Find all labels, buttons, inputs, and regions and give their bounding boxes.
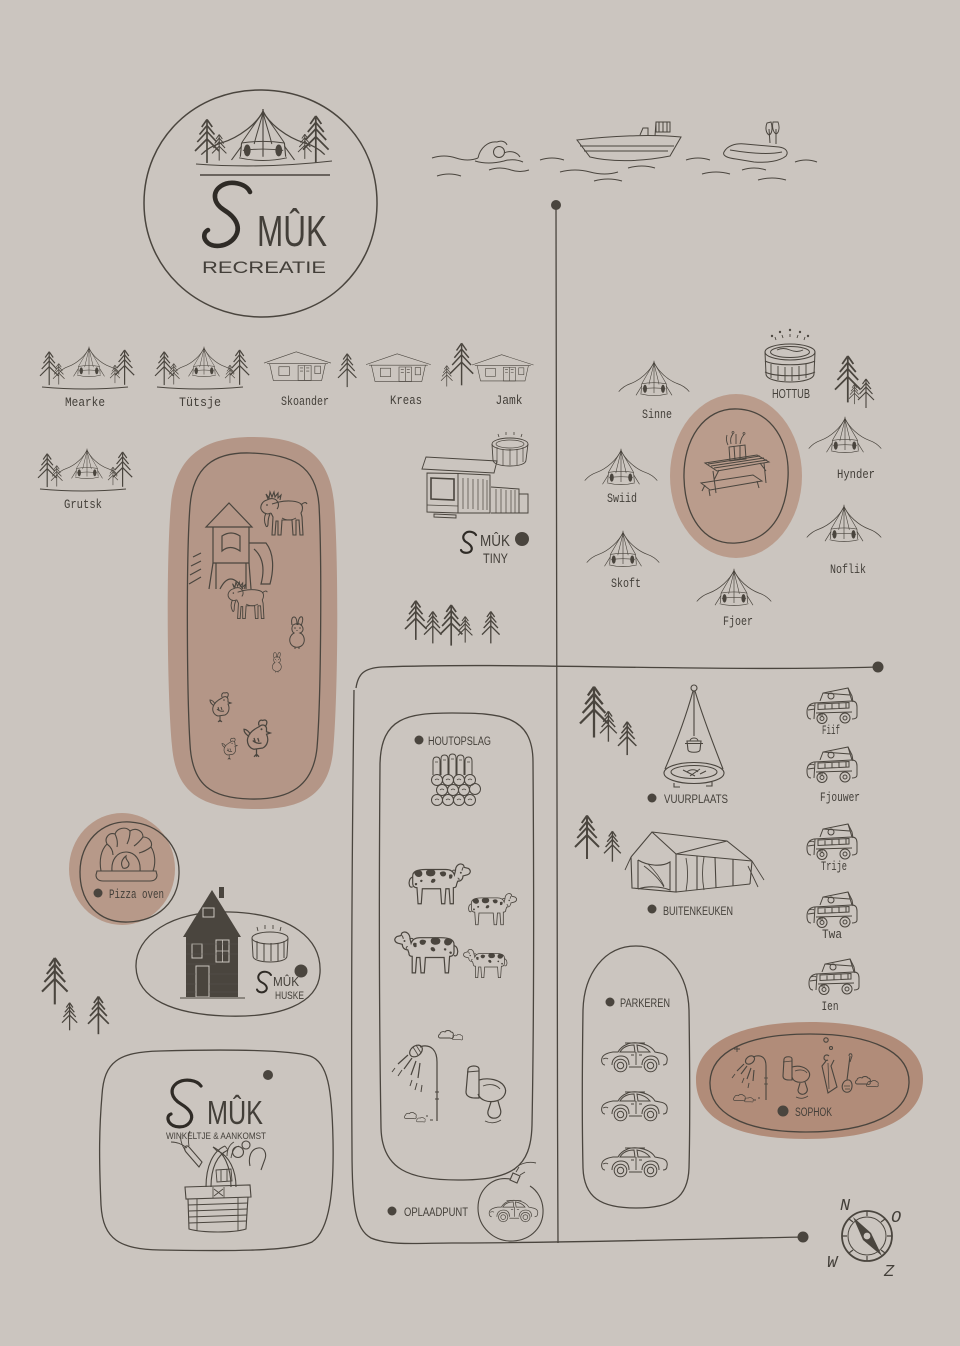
svg-text:O: O <box>891 1209 901 1228</box>
svg-text:Skoander: Skoander <box>281 394 329 409</box>
svg-text:MÛK: MÛK <box>257 206 327 256</box>
svg-text:N: N <box>840 1197 851 1216</box>
svg-text:HUSKE: HUSKE <box>275 990 304 1002</box>
svg-text:Jamk: Jamk <box>496 393 523 408</box>
svg-text:Tütsje: Tütsje <box>179 395 221 410</box>
svg-text:Skoft: Skoft <box>611 576 641 591</box>
svg-text:HOTTUB: HOTTUB <box>772 387 810 401</box>
svg-text:Fiif: Fiif <box>822 724 840 738</box>
svg-text:VUURPLAATS: VUURPLAATS <box>664 792 728 806</box>
svg-text:Fjoer: Fjoer <box>723 614 753 629</box>
svg-text:BUITENKEUKEN: BUITENKEUKEN <box>663 904 733 918</box>
svg-text:W: W <box>827 1254 839 1273</box>
svg-text:MÛK: MÛK <box>480 533 511 550</box>
svg-text:Kreas: Kreas <box>390 393 422 408</box>
svg-text:RECREATIE: RECREATIE <box>202 258 326 277</box>
svg-text:MÛK: MÛK <box>207 1094 263 1131</box>
svg-text:Pizza oven: Pizza oven <box>109 887 164 902</box>
svg-text:Ien: Ien <box>822 1000 839 1014</box>
svg-text:Fjouwer: Fjouwer <box>820 791 860 805</box>
svg-text:SOPHOK: SOPHOK <box>795 1105 832 1119</box>
svg-text:MÛK: MÛK <box>273 974 300 989</box>
svg-text:HOUTOPSLAG: HOUTOPSLAG <box>428 734 491 748</box>
svg-text:Trije: Trije <box>821 860 847 874</box>
svg-text:Hynder: Hynder <box>837 467 875 482</box>
svg-text:Noflik: Noflik <box>830 562 866 577</box>
svg-text:TINY: TINY <box>483 551 508 566</box>
svg-text:Swiid: Swiid <box>607 491 637 506</box>
svg-text:Sinne: Sinne <box>642 407 672 422</box>
svg-text:Twa: Twa <box>822 928 842 942</box>
svg-text:Z: Z <box>883 1263 895 1282</box>
svg-text:OPLAADPUNT: OPLAADPUNT <box>404 1205 468 1219</box>
svg-text:Grutsk: Grutsk <box>64 497 102 512</box>
svg-text:PARKEREN: PARKEREN <box>620 996 670 1010</box>
svg-text:Mearke: Mearke <box>65 395 105 410</box>
